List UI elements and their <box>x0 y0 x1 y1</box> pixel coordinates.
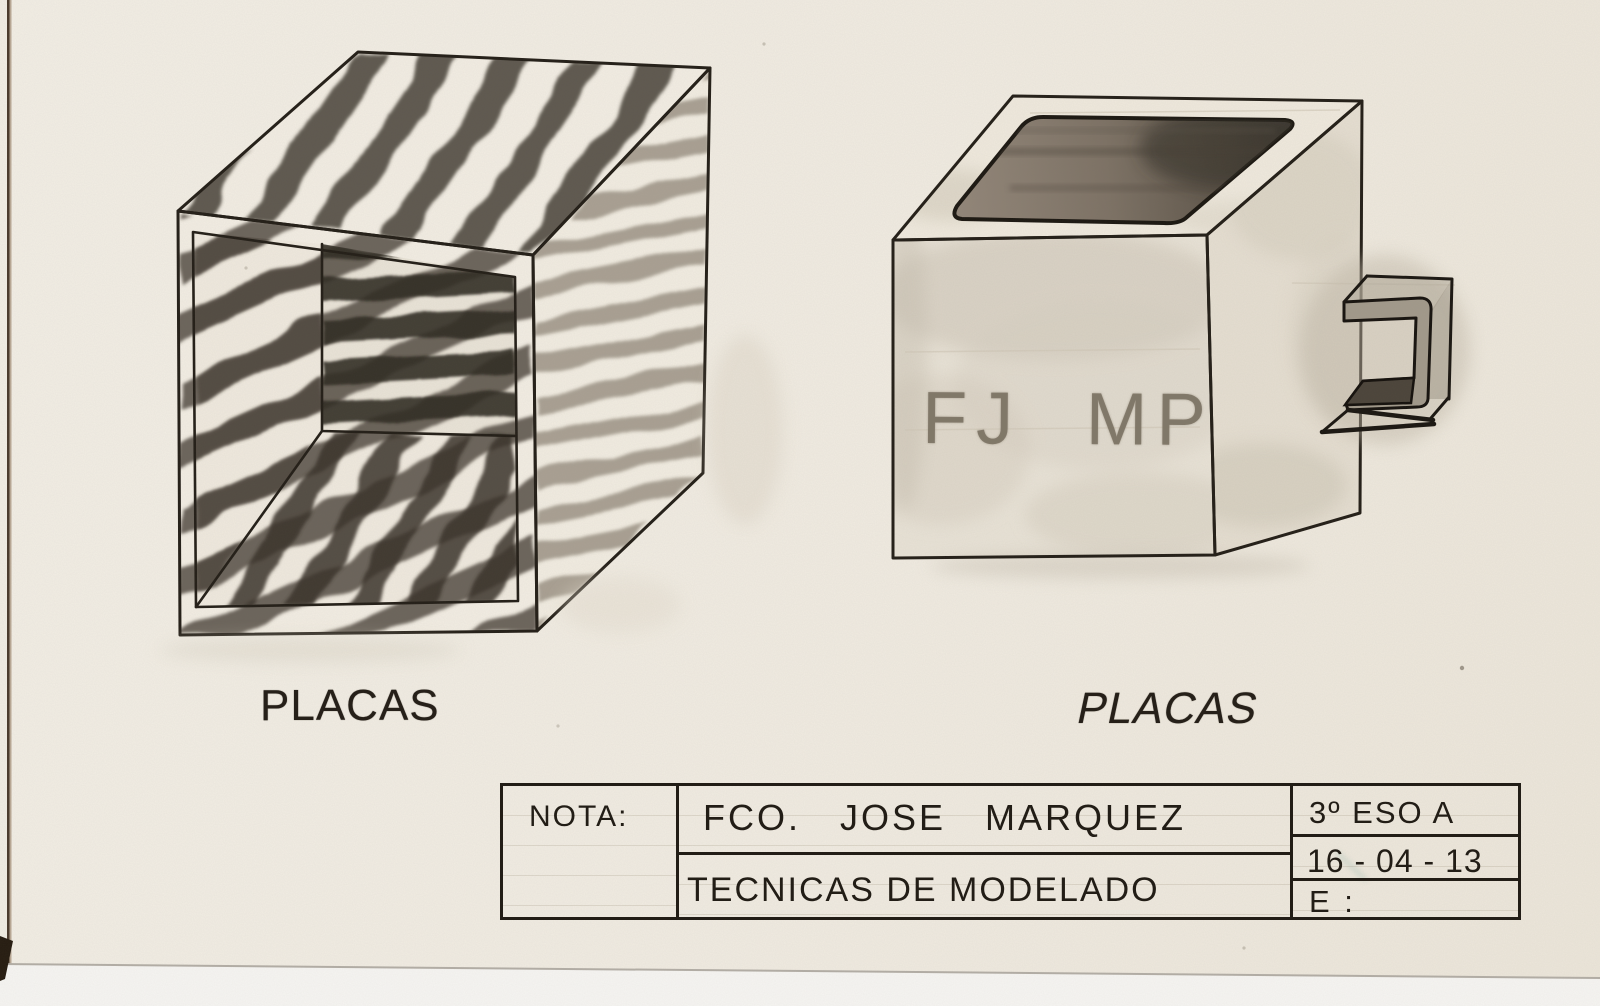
scanned-drawing-sheet: PLACAS PLACAS FJ MP NOTA: FCO. JOSE MARQ… <box>0 0 1600 1006</box>
title-block-date-cell: 16 - 04 - 13 <box>1293 837 1518 881</box>
box-monogram-inscription: FJ MP <box>922 375 1215 462</box>
title-block-author-cell: FCO. JOSE MARQUEZ <box>679 786 1293 855</box>
title-block: NOTA: FCO. JOSE MARQUEZ TECNICAS DE MODE… <box>500 783 1521 920</box>
title-block-group-cell: 3º ESO A <box>1293 786 1518 837</box>
left-figure-caption: PLACAS <box>260 681 440 731</box>
right-figure-caption: PLACAS <box>1073 684 1263 734</box>
title-block-scale-cell: E : <box>1293 881 1518 917</box>
title-block-nota-cell: NOTA: <box>503 786 679 917</box>
title-block-subject-cell: TECNICAS DE MODELADO <box>679 855 1293 917</box>
